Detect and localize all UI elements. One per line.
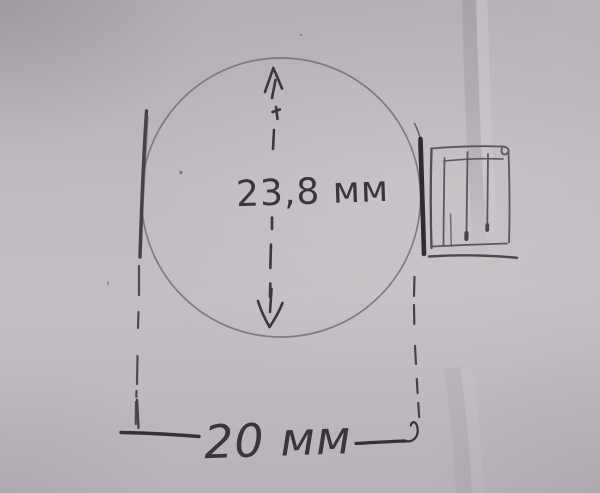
width-label: 20 мм [203, 410, 352, 469]
photographed-paper-sketch: 23,8 мм 20 мм [0, 0, 600, 493]
paper-crease-lower-right [452, 368, 478, 493]
diameter-label: 23,8 мм [235, 169, 389, 215]
left-extension-line [136, 111, 148, 428]
dimensioned-sketch-drawing: 23,8 мм 20 мм [0, 0, 600, 493]
paper-crease-vertical [469, 0, 494, 255]
right-extension-line [414, 124, 424, 418]
